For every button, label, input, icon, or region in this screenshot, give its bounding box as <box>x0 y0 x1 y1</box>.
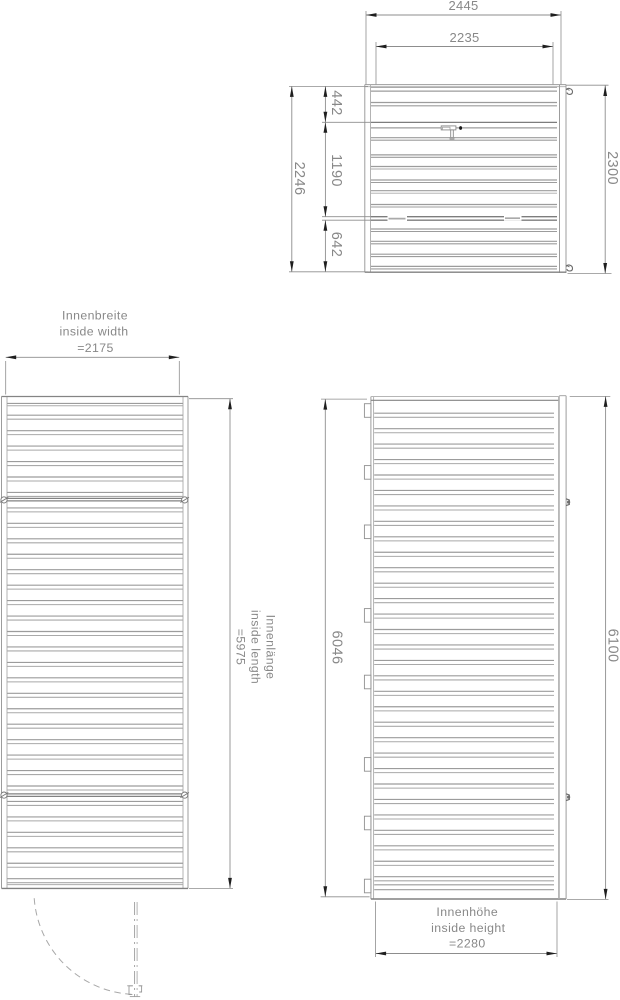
svg-text:442: 442 <box>328 90 344 115</box>
svg-text:Innenlänge: Innenlänge <box>263 615 277 680</box>
svg-text:inside width: inside width <box>59 325 128 339</box>
svg-text:inside height: inside height <box>431 921 505 935</box>
svg-text:Innenbreite: Innenbreite <box>62 309 128 323</box>
svg-text:2445: 2445 <box>448 0 478 13</box>
svg-text:=2280: =2280 <box>449 936 486 950</box>
svg-text:2300: 2300 <box>604 151 620 185</box>
svg-text:6046: 6046 <box>328 631 344 665</box>
svg-text:inside length: inside length <box>248 610 262 684</box>
svg-text:Innenhöhe: Innenhöhe <box>436 905 498 919</box>
svg-text:1190: 1190 <box>328 154 344 187</box>
svg-text:2235: 2235 <box>449 30 479 45</box>
svg-text:642: 642 <box>328 232 344 257</box>
svg-text:2246: 2246 <box>291 162 307 196</box>
svg-text:6100: 6100 <box>604 629 620 663</box>
svg-text:=2175: =2175 <box>77 341 114 355</box>
svg-text:=5975: =5975 <box>233 629 247 666</box>
